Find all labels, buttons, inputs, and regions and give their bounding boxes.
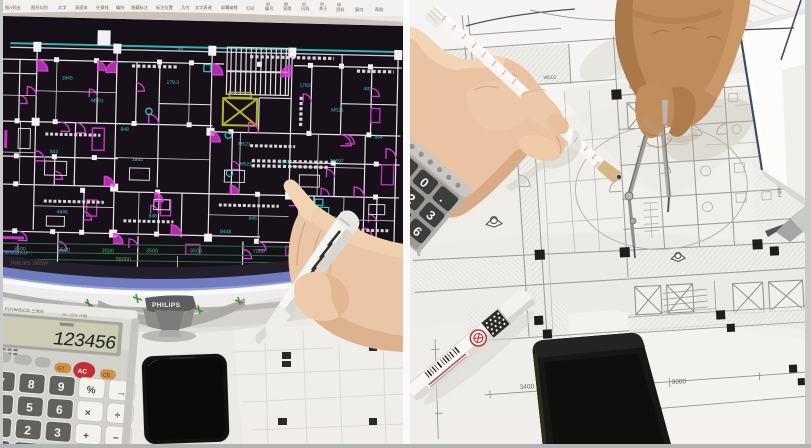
svg-text:GT: GT xyxy=(57,366,66,373)
svg-text:3500: 3500 xyxy=(102,248,114,254)
svg-text:5543: 5543 xyxy=(279,159,290,165)
svg-text:图A列出: 图A列出 xyxy=(5,4,20,11)
svg-text:CE: CE xyxy=(103,373,111,380)
svg-text:PHILIPS: PHILIPS xyxy=(152,302,181,309)
svg-text:关于: 关于 xyxy=(319,5,327,12)
svg-text:−: − xyxy=(113,433,120,444)
svg-text:编阵: 编阵 xyxy=(116,4,125,11)
svg-text:窗口: 窗口 xyxy=(355,6,363,13)
svg-text:M501: M501 xyxy=(91,98,104,104)
svg-text:3400: 3400 xyxy=(520,383,535,391)
svg-text:4846: 4846 xyxy=(57,209,68,215)
svg-text:848: 848 xyxy=(120,127,129,133)
svg-text:资料: 资料 xyxy=(336,6,345,13)
svg-text:屏幕缩铁: 屏幕缩铁 xyxy=(221,4,239,11)
svg-text:几内: 几内 xyxy=(181,4,189,11)
svg-text:34697: 34697 xyxy=(330,158,344,164)
svg-text:178.3: 178.3 xyxy=(166,80,179,86)
svg-text:×: × xyxy=(84,408,91,419)
svg-text:+: + xyxy=(83,431,90,442)
svg-text:884: 884 xyxy=(374,134,383,140)
svg-text:56000: 56000 xyxy=(115,257,130,263)
svg-text:483: 483 xyxy=(363,86,372,92)
svg-text:1845: 1845 xyxy=(62,75,73,81)
svg-text:3500: 3500 xyxy=(190,248,202,254)
svg-text:闪烁: 闪烁 xyxy=(301,5,309,11)
svg-text:3500: 3500 xyxy=(58,247,70,253)
svg-text:打印: 打印 xyxy=(246,5,254,12)
svg-text:文字: 文字 xyxy=(58,4,66,11)
svg-text:848: 848 xyxy=(148,213,157,219)
svg-text:文字表改: 文字表改 xyxy=(195,4,213,11)
svg-text:8448: 8448 xyxy=(220,229,231,235)
svg-text:任意线: 任意线 xyxy=(96,4,109,11)
svg-text:隐藏标注: 隐藏标注 xyxy=(131,4,149,11)
svg-text:图形勾别: 图形勾别 xyxy=(31,4,48,11)
svg-text:PHILIPS 190SW: PHILIPS 190SW xyxy=(11,261,48,267)
svg-text:表面体: 表面体 xyxy=(75,4,88,11)
svg-text:846: 846 xyxy=(248,216,257,222)
svg-text:M521: M521 xyxy=(240,161,253,167)
svg-text:编号: 编号 xyxy=(265,5,273,12)
svg-text:48: 48 xyxy=(177,46,183,52)
svg-text:帮助: 帮助 xyxy=(375,6,383,13)
svg-text:AC: AC xyxy=(77,368,87,376)
svg-text:宣愿: 宣愿 xyxy=(283,5,291,12)
svg-text:医療施設B1F ：: 医療施設B1F ： xyxy=(3,249,35,257)
svg-text:9000: 9000 xyxy=(671,378,686,386)
svg-text:842: 842 xyxy=(50,149,59,155)
svg-text:M521: M521 xyxy=(331,107,344,113)
svg-text:W501: W501 xyxy=(543,75,557,82)
svg-text:标注位置: 标注位置 xyxy=(156,4,173,11)
svg-text:%: % xyxy=(86,385,96,397)
svg-text:3500: 3500 xyxy=(146,248,158,254)
svg-text:1783: 1783 xyxy=(299,83,310,89)
